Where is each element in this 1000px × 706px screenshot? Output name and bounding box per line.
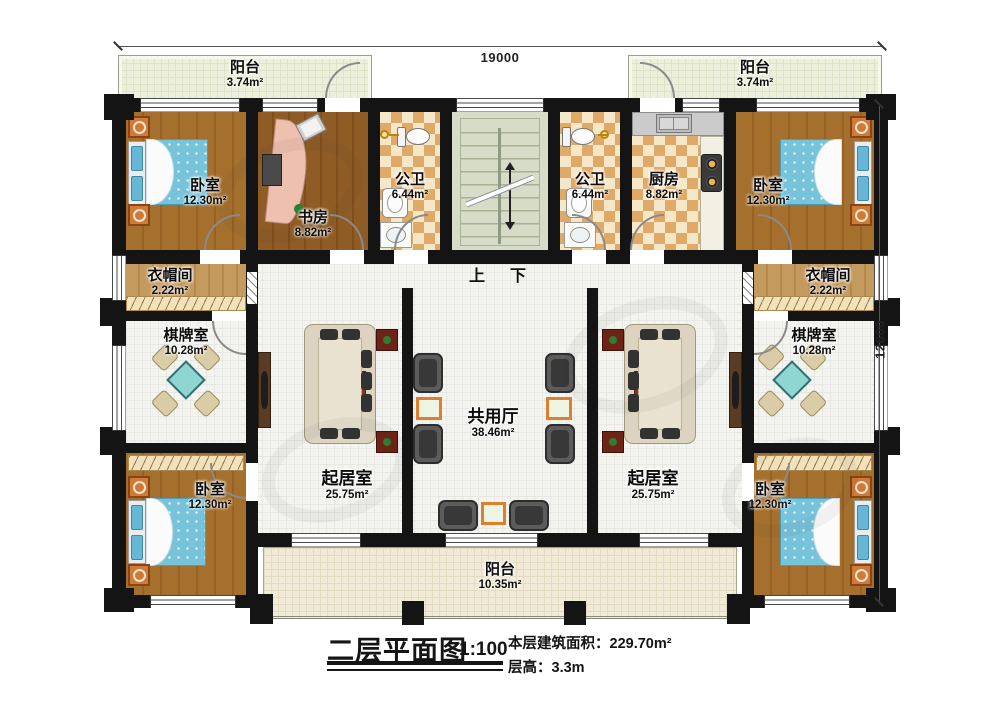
window bbox=[150, 595, 236, 608]
pillar bbox=[104, 588, 134, 612]
pillar bbox=[100, 427, 112, 455]
window bbox=[874, 255, 888, 301]
balcony-pillar bbox=[402, 601, 424, 625]
window bbox=[112, 255, 126, 301]
hall-chair bbox=[413, 424, 443, 464]
pillar bbox=[888, 427, 900, 455]
bifold-door-cloak-right bbox=[743, 272, 753, 304]
wall-bedroom-bl-top bbox=[112, 443, 258, 453]
sofa-cushion bbox=[662, 428, 680, 439]
sofa-cushion bbox=[662, 329, 680, 340]
sliding-door bbox=[639, 533, 709, 547]
stair-direction-line bbox=[509, 170, 511, 222]
plan-scale: 1:100 bbox=[459, 639, 508, 661]
hall-table bbox=[546, 397, 572, 420]
stair-down-label: 下 bbox=[510, 262, 526, 286]
dimension-right-value: 12600 bbox=[873, 315, 888, 365]
wall-v1 bbox=[246, 112, 258, 264]
pillow bbox=[857, 176, 869, 201]
door-gap-games-left bbox=[212, 311, 246, 321]
bed-mattress bbox=[780, 139, 842, 205]
kitchen-sink bbox=[656, 114, 692, 133]
sofa-cushion bbox=[361, 350, 372, 368]
wall-hall-left bbox=[402, 288, 413, 547]
pillar bbox=[100, 298, 112, 326]
wall-games-right bbox=[742, 321, 754, 453]
door-gap-balcony-right bbox=[640, 98, 675, 112]
dimension-top-value: 19000 bbox=[460, 50, 540, 65]
sofa-cushion bbox=[361, 394, 372, 412]
tv-cabinet bbox=[729, 352, 742, 428]
title-underline-thick bbox=[327, 661, 503, 665]
title-underline-thin bbox=[327, 669, 503, 671]
stair-rail bbox=[498, 128, 501, 244]
door-gap-bedroom-bl bbox=[246, 463, 258, 501]
sofa-cushion bbox=[628, 394, 639, 412]
washing-machine bbox=[382, 188, 408, 218]
bed-headboard bbox=[128, 141, 146, 205]
bed-blanket bbox=[813, 498, 840, 566]
balcony-pillar bbox=[250, 594, 273, 624]
window bbox=[682, 98, 720, 112]
bed-headboard bbox=[854, 141, 872, 205]
hall-chair bbox=[413, 353, 443, 393]
wall-v3 bbox=[440, 112, 452, 264]
floor-plan: 上 下 bbox=[0, 0, 1000, 706]
wall-v4 bbox=[548, 112, 560, 264]
window bbox=[456, 98, 544, 112]
toilet-tank bbox=[397, 127, 406, 147]
sofa-cushion bbox=[640, 428, 658, 439]
hall-table bbox=[481, 502, 506, 525]
hall-chair bbox=[509, 500, 549, 531]
wall-hall-right bbox=[587, 288, 598, 547]
sofa-cushion bbox=[342, 428, 360, 439]
bed-bottom-left bbox=[126, 474, 222, 588]
nightstand bbox=[128, 564, 150, 586]
pillar bbox=[888, 298, 900, 326]
toilet-bowl bbox=[571, 128, 595, 145]
side-table bbox=[376, 329, 398, 351]
stair-arrow-up bbox=[505, 162, 515, 170]
door-gap-bath-right bbox=[572, 250, 606, 264]
door-gap-kitchen bbox=[630, 250, 664, 264]
hall-chair bbox=[438, 500, 478, 531]
bed-mattress bbox=[146, 139, 208, 205]
sliding-door bbox=[445, 533, 538, 547]
hall-chair bbox=[545, 353, 575, 393]
nightstand bbox=[850, 204, 872, 226]
door-gap-bedroom-br bbox=[742, 463, 754, 501]
side-table bbox=[602, 329, 624, 351]
floor-height-text: 层高：3.3m bbox=[508, 656, 585, 677]
bed-headboard bbox=[128, 500, 146, 564]
pillow bbox=[131, 505, 143, 530]
sofa-cushion bbox=[628, 372, 639, 390]
wall-v2 bbox=[368, 112, 380, 264]
wall-v6 bbox=[724, 112, 736, 264]
balcony-pillar bbox=[564, 601, 586, 625]
tv-cabinet bbox=[258, 352, 271, 428]
cloak-right-rack bbox=[754, 296, 874, 311]
window bbox=[764, 595, 850, 608]
pillow bbox=[857, 505, 869, 530]
sofa-cushion bbox=[320, 428, 338, 439]
hall-chair bbox=[545, 424, 575, 464]
sofa-cushion bbox=[628, 350, 639, 368]
pillar bbox=[866, 588, 896, 612]
hall-table bbox=[416, 397, 442, 420]
wall-games-left bbox=[246, 321, 258, 453]
side-table bbox=[602, 431, 624, 453]
bed-headboard bbox=[854, 500, 872, 564]
door-gap-bath-left bbox=[394, 250, 428, 264]
door-gap-bedroom-tl bbox=[200, 250, 240, 264]
stair-up-label: 上 bbox=[469, 262, 485, 286]
bed-top-left bbox=[126, 114, 222, 226]
bed-mattress bbox=[146, 498, 206, 566]
washing-machine bbox=[566, 188, 592, 218]
nightstand bbox=[850, 564, 872, 586]
sofa-cushion bbox=[361, 372, 372, 390]
stove bbox=[701, 154, 722, 192]
toilet-tank bbox=[562, 127, 571, 147]
sofa-seat bbox=[638, 338, 682, 430]
sofa-cushion bbox=[342, 329, 360, 340]
bed-blanket bbox=[146, 498, 173, 566]
window bbox=[140, 98, 240, 112]
stair-arrow-down bbox=[505, 222, 515, 230]
dimension-line-top bbox=[118, 46, 882, 47]
pillar bbox=[104, 94, 134, 120]
sofa-seat bbox=[318, 338, 362, 430]
sofa-cushion bbox=[320, 329, 338, 340]
door-gap-games-right bbox=[754, 311, 788, 321]
pillow bbox=[857, 146, 869, 171]
build-area-text: 本层建筑面积：229.70m² bbox=[508, 632, 672, 653]
door-gap-balcony-left bbox=[325, 98, 360, 112]
door-gap-bedroom-tr bbox=[758, 250, 792, 264]
door-gap-study bbox=[330, 250, 364, 264]
balcony-bottom-floor bbox=[263, 547, 737, 619]
pillow bbox=[857, 535, 869, 560]
computer-monitor bbox=[262, 154, 282, 186]
nightstand bbox=[128, 204, 150, 226]
balcony-pillar bbox=[727, 594, 750, 624]
pillow bbox=[131, 176, 143, 201]
plant bbox=[294, 204, 304, 214]
nightstand bbox=[850, 476, 872, 498]
towel-bar bbox=[598, 134, 608, 136]
bed-blanket bbox=[146, 139, 174, 205]
towel-bar bbox=[389, 134, 399, 136]
side-table bbox=[376, 431, 398, 453]
toilet-bowl bbox=[406, 128, 430, 145]
window bbox=[112, 345, 126, 431]
stairwell bbox=[452, 112, 548, 252]
bed-blanket bbox=[814, 139, 842, 205]
window bbox=[756, 98, 860, 112]
bed-mattress bbox=[780, 498, 840, 566]
nightstand bbox=[128, 476, 150, 498]
sofa-cushion bbox=[640, 329, 658, 340]
bifold-door-cloak-left bbox=[247, 272, 257, 304]
pillow bbox=[131, 535, 143, 560]
towel-ring bbox=[380, 130, 389, 139]
pillow bbox=[131, 146, 143, 171]
sliding-door bbox=[291, 533, 361, 547]
wall-bedroom-br-top bbox=[742, 443, 888, 453]
cloak-left-rack bbox=[126, 296, 246, 311]
bed-top-right bbox=[758, 114, 874, 226]
window bbox=[262, 98, 318, 112]
